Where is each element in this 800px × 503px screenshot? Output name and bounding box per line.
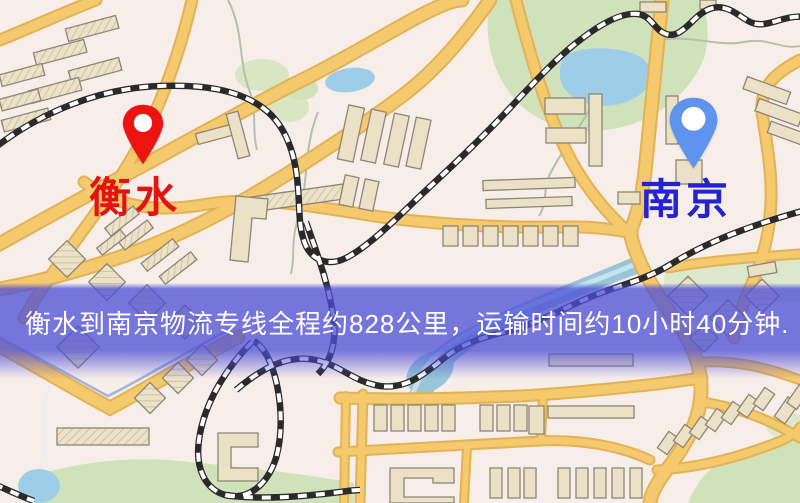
- map-view[interactable]: 衡水 南京 衡水到南京物流专线全程约828公里，运输时间约10小时40分钟.: [0, 0, 800, 503]
- nanjing-marker-icon[interactable]: [665, 95, 722, 170]
- pin-hole: [682, 107, 706, 131]
- hengshui-label: 衡水: [89, 177, 181, 219]
- pin-shape: [123, 105, 163, 165]
- nanjing-label: 南京: [640, 179, 732, 221]
- hengshui-marker-icon[interactable]: [119, 99, 167, 169]
- pin-hole: [134, 114, 152, 132]
- map-canvas: [0, 0, 800, 503]
